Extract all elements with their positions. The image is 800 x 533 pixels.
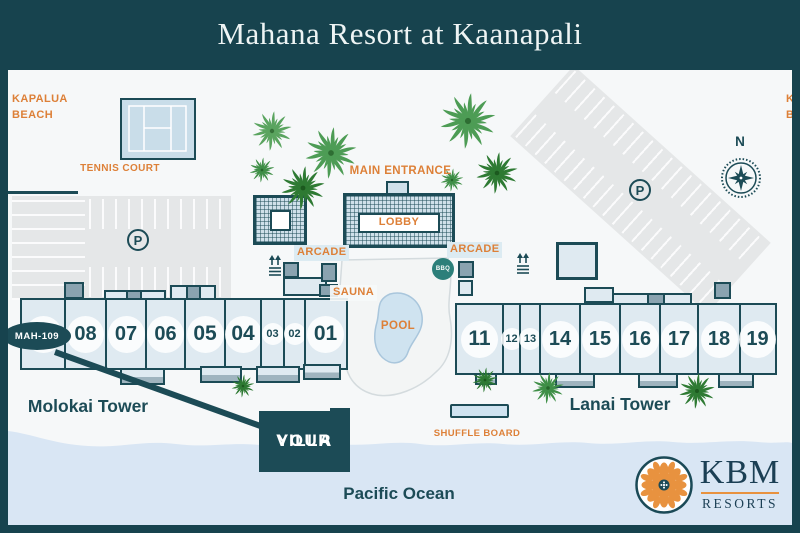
kbm-logo-wordmark: KBM	[698, 454, 782, 492]
logo-divider	[701, 492, 779, 494]
kbm-logo-icon	[634, 455, 694, 515]
arcade-right-label: ARCADE	[447, 242, 502, 258]
your-villa-callout: YOUR VILLA	[259, 411, 350, 472]
label-line: BEACH	[786, 108, 792, 124]
palm-tree-icon	[282, 166, 325, 210]
arcade-left-label: ARCADE	[294, 245, 349, 261]
sauna-label: SAUNA	[330, 285, 377, 301]
tennis-court-label: TENNIS COURT	[72, 162, 168, 177]
bbq-icon: BBQ	[432, 258, 454, 280]
lanai-tower-label: Lanai Tower	[540, 394, 700, 415]
resort-map-poster: Mahana Resort at Kaanapali P P	[0, 0, 800, 533]
main-entrance-label: MAIN ENTRANCE	[333, 163, 468, 180]
palm-tree-icon	[250, 157, 275, 182]
villa-unit-number: MAH-109	[15, 331, 59, 342]
kbm-logo-subtitle: RESORTS	[698, 496, 782, 512]
page-title: Mahana Resort at Kaanapali	[0, 16, 800, 52]
palm-tree-icon	[253, 111, 292, 151]
palm-tree-icon	[473, 367, 498, 392]
site-map: P P LOBBY	[8, 70, 792, 525]
palm-tree-icon	[232, 374, 255, 397]
molokai-tower-label: Molokai Tower	[18, 396, 158, 417]
pacific-ocean-label: Pacific Ocean	[299, 484, 499, 504]
label-line: KAPALUA	[12, 92, 68, 108]
label-line: BEACH	[12, 108, 53, 124]
compass-north-label: N	[730, 134, 750, 149]
palm-tree-icon	[441, 93, 496, 149]
label-line: KAANAPALI	[786, 92, 792, 108]
pool-label: POOL	[370, 318, 426, 335]
bbq-label: BBQ	[436, 266, 450, 272]
your-villa-line2: VILLA	[276, 427, 333, 455]
shuffle-board-label: SHUFFLE BOARD	[417, 427, 537, 441]
palm-tree-icon	[477, 152, 518, 194]
compass-rose-icon	[719, 156, 763, 200]
